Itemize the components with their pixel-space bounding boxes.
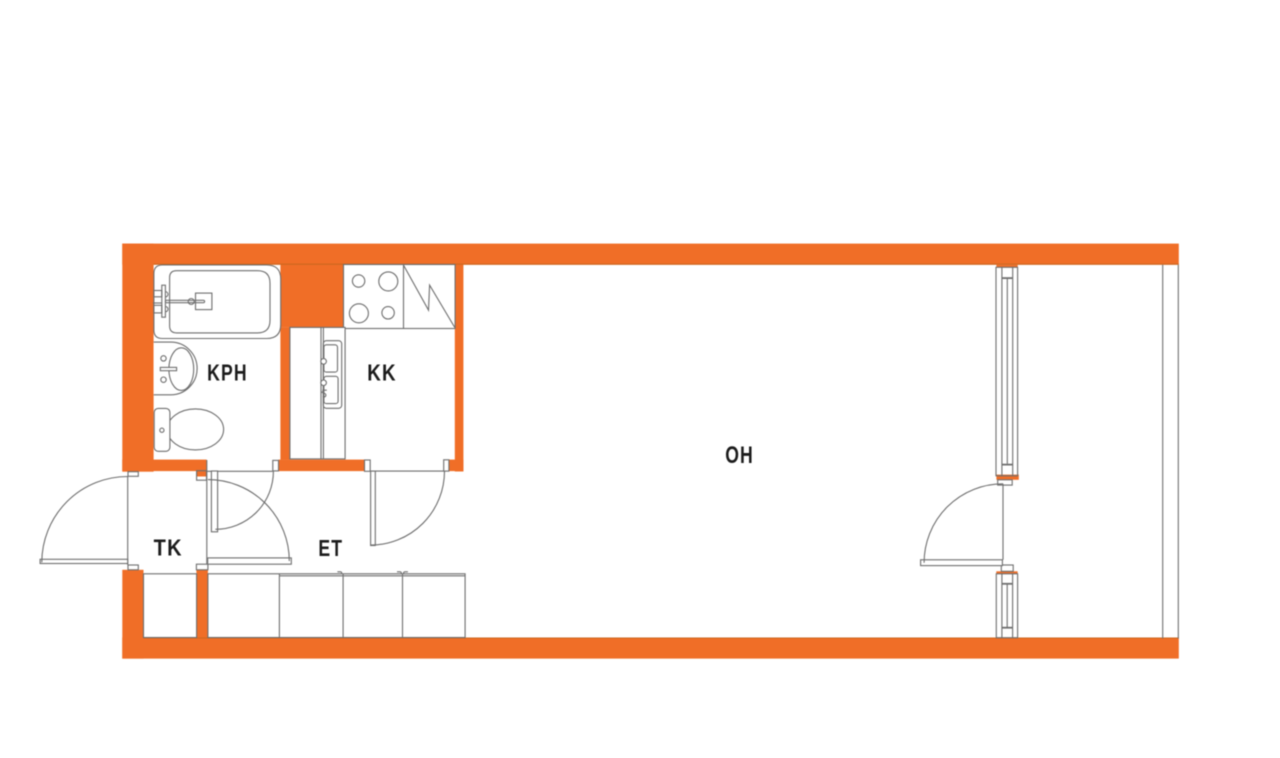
svg-text:ET: ET [318,536,343,562]
svg-text:KK: KK [367,360,397,387]
svg-text:KPH: KPH [207,360,248,386]
svg-text:TK: TK [154,534,183,561]
svg-text:OH: OH [725,441,754,469]
